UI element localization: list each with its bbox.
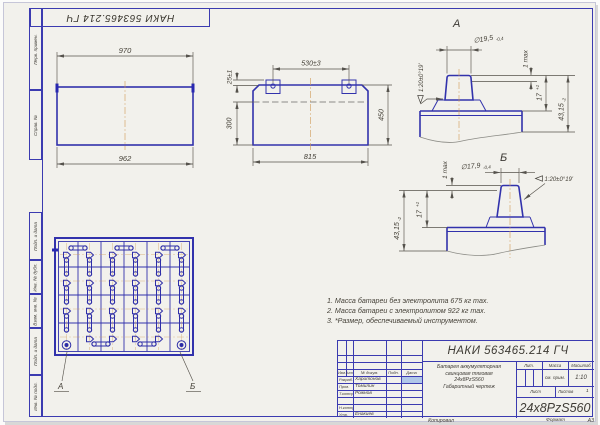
plan-view: А Б [52, 238, 201, 392]
col-sign: Подп. [386, 369, 401, 376]
col-list: Лист [346, 369, 353, 376]
detail-a-h2-tol: -2 [562, 97, 567, 102]
col-izm: Изм. [338, 369, 346, 376]
description-line: 24х8PzS560 [422, 377, 516, 384]
taper-icon [536, 176, 543, 181]
detail-a-gap: 1 max [523, 49, 530, 67]
side-view: 970 962 [57, 46, 193, 168]
detail-a-title: А [452, 18, 460, 30]
description: Батарея аккумуляторная свинцовая тяговая… [422, 364, 516, 390]
detail-a-dia: ∅19,5 [473, 35, 494, 45]
sheets-label: Листов [558, 389, 582, 394]
row-role: Т.контр. [339, 391, 353, 396]
callout-b-label: Б [190, 382, 195, 391]
format-label: Формат [546, 418, 565, 424]
row-name: Харитонов [355, 377, 386, 382]
date-highlight [402, 377, 422, 383]
row-role: Разраб. [339, 377, 353, 382]
note-1: 1. Масса батареи без электролита 675 кг … [327, 297, 488, 305]
note-3: 3. *Размер, обеспечиваемый инструментом. [327, 317, 478, 325]
detail-a-dia-tol: -0,4 [495, 36, 504, 42]
dim-25: 25±1 [227, 69, 234, 85]
detail-a-h1: 17 [537, 92, 544, 101]
detail-b-title: Б [500, 152, 507, 164]
callout-a-label: А [57, 382, 63, 391]
detail-a-taper: 1:20±0°19' [419, 63, 425, 92]
format-note: Формат A3 [546, 418, 594, 424]
detail-b-gap: 1 max [442, 160, 449, 178]
col-date: Дата [401, 369, 422, 376]
detail-b-dia: ∅17,9 [460, 162, 480, 171]
row-name: Рожнов [355, 391, 386, 396]
notes: 1. Масса батареи без электролита 675 кг … [326, 297, 488, 325]
drawing-sheet: Перв. примен. Справ. № Подп. и дата Инв.… [0, 0, 600, 425]
row-name: Томилин [355, 384, 386, 389]
format-value: A3 [588, 418, 594, 424]
scale-label: Масштаб [568, 361, 594, 369]
row-role: Пров. [339, 384, 353, 389]
row-name: Енакиев [355, 412, 386, 417]
title-block: Изм. Лист № докум. Подп. Дата Разраб. Ха… [337, 340, 593, 417]
detail-b-taper: 1:20±0°19' [545, 177, 574, 183]
row-role: Н.контр. [339, 405, 353, 410]
detail-a-h1-tol: +1 [535, 84, 540, 90]
detail-b-h2: 43,15 [394, 222, 401, 240]
designation: НАКИ 563465.214 ГЧ [422, 341, 594, 361]
detail-a-h2: 43,15 [559, 103, 566, 121]
sheets-value: 1 [586, 389, 593, 394]
dim-530: 530±3 [301, 61, 321, 68]
dim-970: 970 [119, 46, 132, 55]
col-doc: № докум. [353, 369, 386, 376]
dim-300: 300 [227, 118, 234, 130]
dim-450: 450 [379, 109, 386, 121]
detail-b-h1: 17 [417, 209, 424, 218]
detail-b-dia-tol: -0,4 [483, 164, 492, 170]
detail-b-h2-tol: -2 [397, 216, 402, 221]
row-role: Утв. [339, 412, 353, 417]
mass-value: см. прим. [542, 369, 568, 386]
lit-label: Лит. [516, 361, 542, 369]
note-2: 2. Масса батареи с электролитом 922 кг m… [326, 307, 486, 315]
description-line: Батарея аккумуляторная [422, 364, 516, 371]
detail-b-h1-tol: +1 [415, 201, 420, 207]
copied-label: Копировал [408, 418, 474, 424]
dim-815: 815 [304, 152, 317, 161]
detail-b: Б ∅17,9 -0,4 [394, 152, 574, 258]
dim-962: 962 [119, 154, 132, 163]
sheet-label: Лист [516, 386, 555, 397]
description-line: Габаритный чертеж [422, 384, 516, 391]
front-view: 530±3 25±1 300 450 815 [227, 61, 393, 167]
mass-label: Масса [542, 361, 568, 369]
description-line: свинцовая тяговая [422, 371, 516, 378]
detail-a: А ∅19,5 -0,4 [418, 18, 575, 142]
taper-icon [418, 96, 424, 104]
type-code: 24х8PzS560 [516, 397, 594, 418]
scale-value: 1:10 [568, 369, 594, 386]
